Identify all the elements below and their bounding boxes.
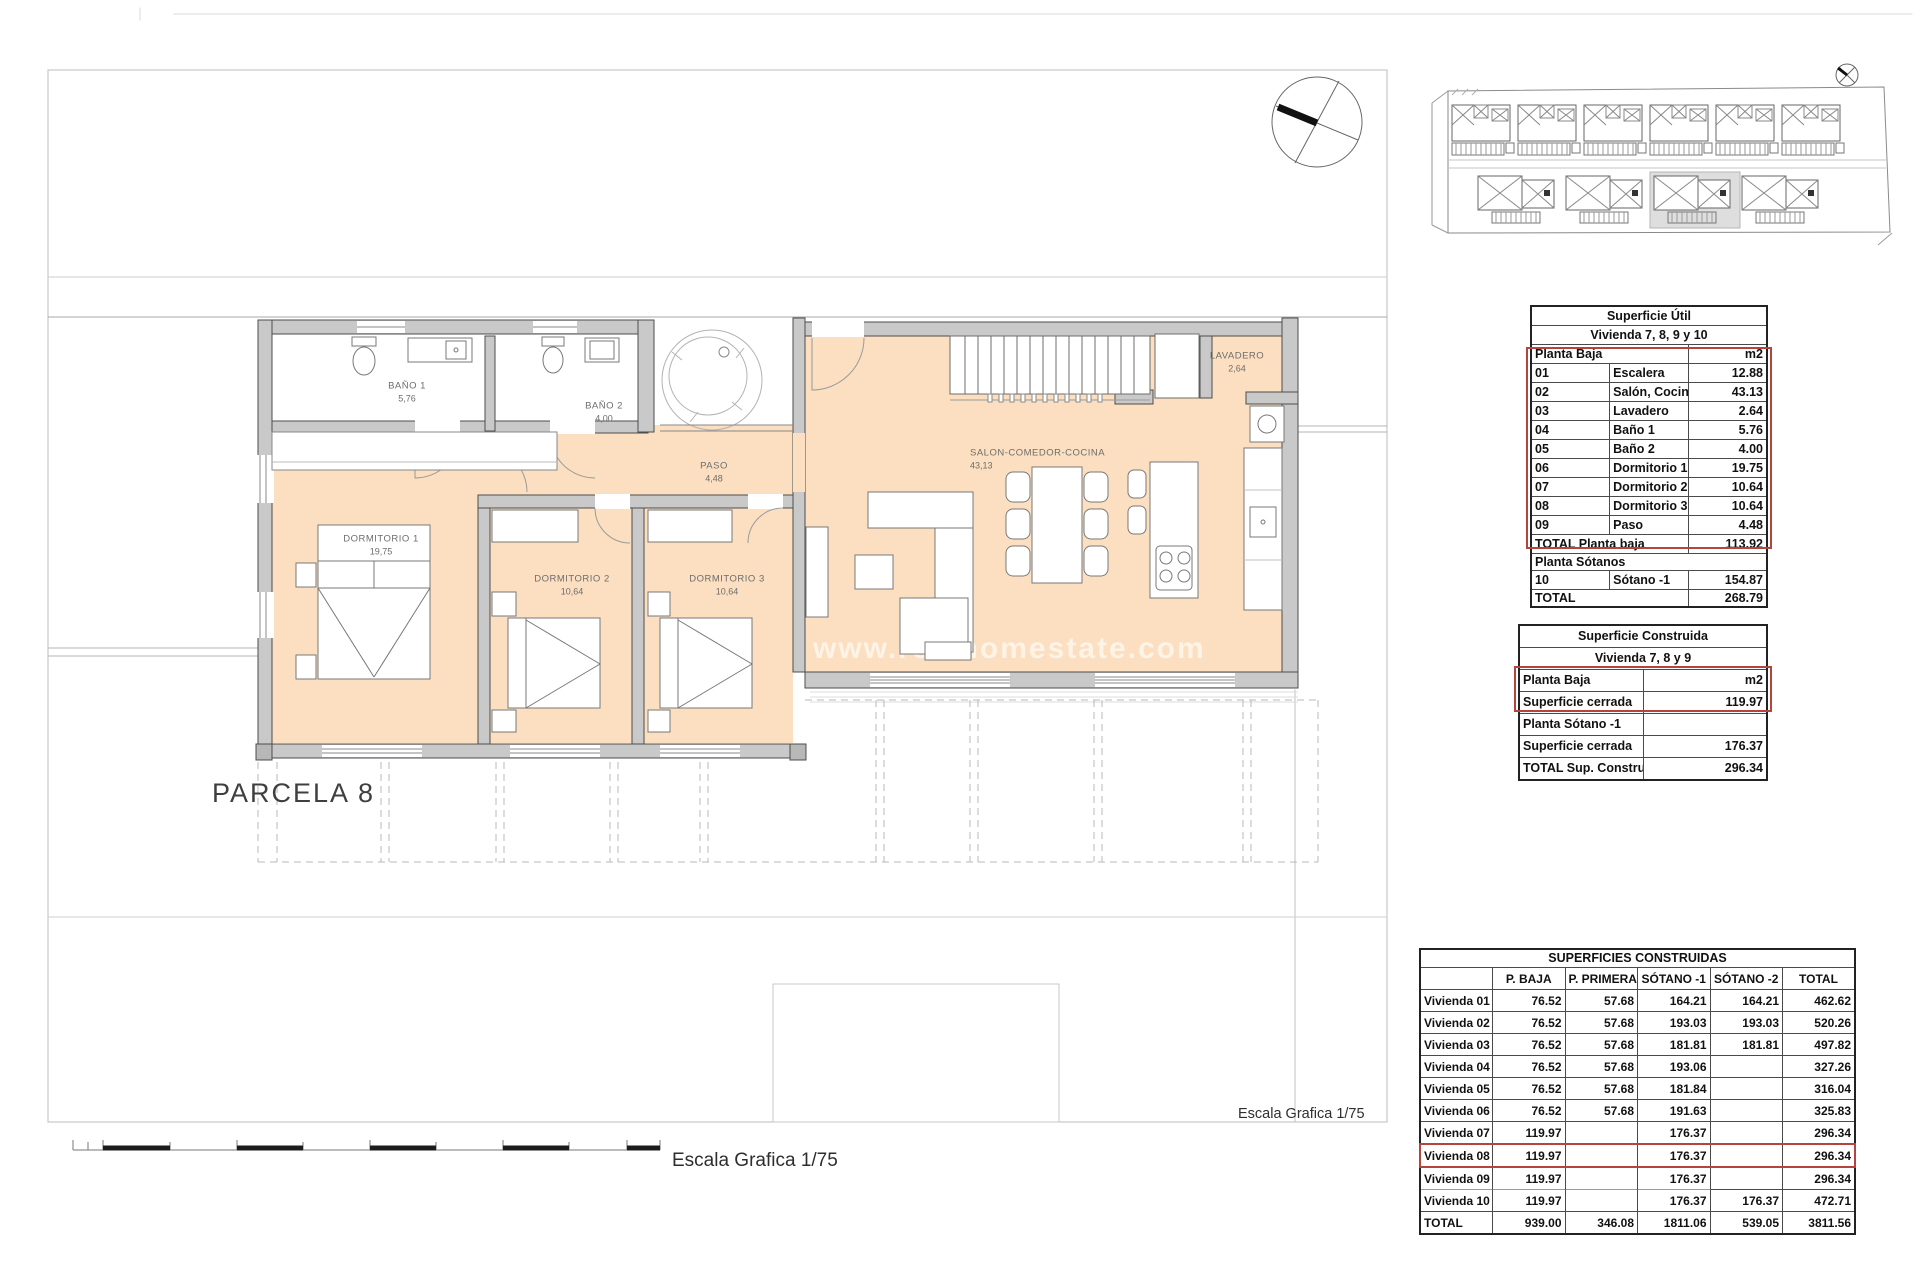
room-area: 5,76 xyxy=(388,394,426,403)
value-cell: 5.76 xyxy=(1688,421,1767,440)
bar-stool xyxy=(1128,506,1146,534)
coffee-table xyxy=(855,555,893,589)
room-area: 4,48 xyxy=(700,474,728,483)
table-row: 04 Baño 1 5.76 xyxy=(1531,421,1767,440)
table-row: Vivienda 01 76.52 57.68 164.21 164.21 46… xyxy=(1420,990,1855,1012)
tree-icon xyxy=(662,330,762,430)
table-row: 01 Escalera 12.88 xyxy=(1531,364,1767,383)
scale-note-plan: Escala Grafica 1/75 xyxy=(1238,1106,1365,1122)
bed-dormitorio-2 xyxy=(508,618,600,708)
value-cell: 193.03 xyxy=(1710,1012,1783,1034)
table-row: Vivienda 04 76.52 57.68 193.06 327.26 xyxy=(1420,1056,1855,1078)
value-cell: 76.52 xyxy=(1493,1056,1566,1078)
row-number: 04 xyxy=(1531,421,1610,440)
tv-unit xyxy=(806,527,828,617)
washing-machine-icon xyxy=(1250,406,1284,442)
value-cell xyxy=(1710,1100,1783,1122)
table-row: 08 Dormitorio 3 10.64 xyxy=(1531,497,1767,516)
room-label-lavadero: LAVADERO 2,64 xyxy=(1210,351,1264,373)
row-number: 07 xyxy=(1531,478,1610,497)
bed-dormitorio-3 xyxy=(660,618,752,708)
value-cell: 316.04 xyxy=(1783,1078,1856,1100)
value-cell: 472.71 xyxy=(1783,1190,1856,1212)
value-cell: m2 xyxy=(1643,670,1767,692)
room-cell: Dormitorio 3 xyxy=(1610,497,1689,516)
value-cell: 4.00 xyxy=(1688,440,1767,459)
row-number: 02 xyxy=(1531,383,1610,402)
table-title: Superficie Construida xyxy=(1519,625,1767,648)
value-cell: 57.68 xyxy=(1565,1056,1638,1078)
room-cell: Lavadero xyxy=(1610,402,1689,421)
room-area: 19,75 xyxy=(343,547,419,556)
table-superficie-util: Superficie Útil Vivienda 7, 8, 9 y 10 Pl… xyxy=(1530,305,1768,608)
room-label-bano-1: BAÑO 1 5,76 xyxy=(388,381,426,403)
value-cell: 164.21 xyxy=(1638,990,1711,1012)
room-name: BAÑO 1 xyxy=(388,381,426,391)
col-header: P. PRIMERA xyxy=(1565,968,1638,990)
table-row: Vivienda 03 76.52 57.68 181.81 181.81 49… xyxy=(1420,1034,1855,1056)
value-cell: 10.64 xyxy=(1688,478,1767,497)
room-name: DORMITORIO 2 xyxy=(534,574,610,584)
value-cell: 296.34 xyxy=(1783,1167,1856,1190)
vivienda-cell: Vivienda 02 xyxy=(1420,1012,1493,1034)
table-subtitle: Vivienda 7, 8, 9 y 10 xyxy=(1531,326,1767,345)
value-cell: 193.03 xyxy=(1638,1012,1711,1034)
value-cell: 57.68 xyxy=(1565,1100,1638,1122)
value-cell: 19.75 xyxy=(1688,459,1767,478)
vivienda-cell: Vivienda 01 xyxy=(1420,990,1493,1012)
value-cell: 57.68 xyxy=(1565,1078,1638,1100)
row-number: 05 xyxy=(1531,440,1610,459)
room-area: 2,64 xyxy=(1210,364,1264,373)
dining-table xyxy=(1032,467,1082,583)
value-cell: 76.52 xyxy=(1493,1012,1566,1034)
room-label-bano-2: BAÑO 2 4,00 xyxy=(585,401,623,423)
room-area: 10,64 xyxy=(689,587,765,596)
scale-bar xyxy=(73,1140,660,1150)
value-cell: 3811.56 xyxy=(1783,1212,1856,1235)
table-row: 02 Salón, Cocina, Comedor 43.13 xyxy=(1531,383,1767,402)
row-number: 01 xyxy=(1531,364,1610,383)
row-number: 09 xyxy=(1531,516,1610,535)
room-cell: Baño 2 xyxy=(1610,440,1689,459)
room-area: 4,00 xyxy=(585,414,623,423)
row-number: 08 xyxy=(1531,497,1610,516)
value-cell: 176.37 xyxy=(1710,1190,1783,1212)
compass-icon xyxy=(1272,77,1362,167)
table-row: 05 Baño 2 4.00 xyxy=(1531,440,1767,459)
value-cell: 1811.06 xyxy=(1638,1212,1711,1235)
value-cell xyxy=(1710,1056,1783,1078)
total-value: 113.92 xyxy=(1688,535,1767,554)
value-cell: 119.97 xyxy=(1493,1167,1566,1190)
value-cell: 296.34 xyxy=(1783,1122,1856,1145)
column-header-row: P. BAJA P. PRIMERA SÓTANO -1 SÓTANO -2 T… xyxy=(1420,968,1855,990)
value-cell: 181.81 xyxy=(1710,1034,1783,1056)
table-row: 09 Paso 4.48 xyxy=(1531,516,1767,535)
value-cell: 296.34 xyxy=(1783,1144,1856,1167)
value-cell xyxy=(1710,1122,1783,1145)
dining-set xyxy=(1006,467,1108,583)
value-cell: 193.06 xyxy=(1638,1056,1711,1078)
value-cell: 4.48 xyxy=(1688,516,1767,535)
value-cell: 539.05 xyxy=(1710,1212,1783,1235)
value-cell: 119.97 xyxy=(1493,1122,1566,1145)
room-name: PASO xyxy=(700,461,728,471)
room-label-salon: SALON-COMEDOR-COCINA 43,13 xyxy=(970,448,1105,470)
room-area: 43,13 xyxy=(970,461,1105,470)
table-row: Vivienda 07 119.97 176.37 296.34 xyxy=(1420,1122,1855,1145)
row-number: 06 xyxy=(1531,459,1610,478)
table-row: Superficie cerrada 176.37 xyxy=(1519,736,1767,758)
value-cell: 119.97 xyxy=(1493,1144,1566,1167)
table-superficie-construida: Superficie Construida Vivienda 7, 8 y 9 … xyxy=(1518,624,1768,781)
parcel-title: PARCELA 8 xyxy=(212,778,375,809)
value-cell: 296.34 xyxy=(1643,758,1767,781)
table-row: Planta Baja m2 xyxy=(1519,670,1767,692)
value-cell: 939.00 xyxy=(1493,1212,1566,1235)
value-cell: 520.26 xyxy=(1783,1012,1856,1034)
table-row: Vivienda 10 119.97 176.37 176.37 472.71 xyxy=(1420,1190,1855,1212)
scale-note-bottom: Escala Grafica 1/75 xyxy=(672,1150,838,1172)
value-cell: 176.37 xyxy=(1638,1122,1711,1145)
value-cell: 76.52 xyxy=(1493,1100,1566,1122)
vivienda-cell: Vivienda 10 xyxy=(1420,1190,1493,1212)
table-row: TOTAL Sup. Construida 296.34 xyxy=(1519,758,1767,781)
table-row: 06 Dormitorio 1 19.75 xyxy=(1531,459,1767,478)
value-cell: 176.37 xyxy=(1638,1190,1711,1212)
table-row: Vivienda 05 76.52 57.68 181.84 316.04 xyxy=(1420,1078,1855,1100)
stairs xyxy=(950,334,1199,402)
vivienda-cell: Vivienda 05 xyxy=(1420,1078,1493,1100)
room-area: 10,64 xyxy=(534,587,610,596)
vivienda-cell: Vivienda 06 xyxy=(1420,1100,1493,1122)
vivienda-cell: TOTAL xyxy=(1420,1212,1493,1235)
value-cell: 57.68 xyxy=(1565,990,1638,1012)
col-header: P. BAJA xyxy=(1493,968,1566,990)
room-label-dormitorio-2: DORMITORIO 2 10,64 xyxy=(534,574,610,596)
value-cell: 181.84 xyxy=(1638,1078,1711,1100)
value-cell: 119.97 xyxy=(1493,1190,1566,1212)
table-title: Superficie Útil xyxy=(1531,306,1767,326)
row-number: 03 xyxy=(1531,402,1610,421)
value-cell: 119.97 xyxy=(1643,692,1767,714)
value-cell: 327.26 xyxy=(1783,1056,1856,1078)
room-cell: Salón, Cocina, Comedor xyxy=(1610,383,1689,402)
watermark-text: www.realhomestate.com xyxy=(812,632,1206,665)
room-cell: Dormitorio 1 xyxy=(1610,459,1689,478)
sofa xyxy=(868,492,973,528)
col-header: TOTAL xyxy=(1783,968,1856,990)
label-cell: Superficie cerrada xyxy=(1519,736,1643,758)
total-label: TOTAL Planta baja xyxy=(1531,535,1688,554)
hall-wardrobe xyxy=(272,432,557,470)
value-cell: 76.52 xyxy=(1493,990,1566,1012)
value-cell: 176.37 xyxy=(1643,736,1767,758)
table-row: Vivienda 02 76.52 57.68 193.03 193.03 52… xyxy=(1420,1012,1855,1034)
total-value: 268.79 xyxy=(1688,590,1767,608)
room-cell: Baño 1 xyxy=(1610,421,1689,440)
table-superficies-construidas: SUPERFICIES CONSTRUIDAS P. BAJA P. PRIME… xyxy=(1419,948,1856,1235)
value-cell xyxy=(1565,1122,1638,1145)
value-cell: 191.63 xyxy=(1638,1100,1711,1122)
value-cell: 176.37 xyxy=(1638,1144,1711,1167)
table-title: SUPERFICIES CONSTRUIDAS xyxy=(1420,949,1855,968)
value-cell xyxy=(1565,1144,1638,1167)
table-row: Superficie cerrada 119.97 xyxy=(1519,692,1767,714)
room-cell: Dormitorio 2 xyxy=(1610,478,1689,497)
value-cell: 76.52 xyxy=(1493,1034,1566,1056)
value-cell: 2.64 xyxy=(1688,402,1767,421)
section-header: Planta Sótanos xyxy=(1531,554,1767,571)
room-label-paso: PASO 4,48 xyxy=(700,461,728,483)
col-header: SÓTANO -2 xyxy=(1710,968,1783,990)
room-cell: Sótano -1 xyxy=(1610,571,1689,590)
room-label-dormitorio-3: DORMITORIO 3 10,64 xyxy=(689,574,765,596)
value-cell xyxy=(1710,1144,1783,1167)
room-name: DORMITORIO 1 xyxy=(343,534,419,544)
table-row: Vivienda 08 119.97 176.37 296.34 xyxy=(1420,1144,1855,1167)
label-cell: TOTAL Sup. Construida xyxy=(1519,758,1643,781)
table-row: 03 Lavadero 2.64 xyxy=(1531,402,1767,421)
col-header xyxy=(1420,968,1493,990)
label-cell: Superficie cerrada xyxy=(1519,692,1643,714)
value-cell xyxy=(1710,1167,1783,1190)
vivienda-cell: Vivienda 09 xyxy=(1420,1167,1493,1190)
value-cell: 57.68 xyxy=(1565,1012,1638,1034)
vivienda-cell: Vivienda 03 xyxy=(1420,1034,1493,1056)
value-cell xyxy=(1710,1078,1783,1100)
kitchen-sink xyxy=(1250,507,1276,537)
value-cell: 176.37 xyxy=(1638,1167,1711,1190)
value-cell xyxy=(1643,714,1767,736)
room-name: DORMITORIO 3 xyxy=(689,574,765,584)
total-label: TOTAL xyxy=(1531,590,1688,608)
row-number: 10 xyxy=(1531,571,1610,590)
col-header: SÓTANO -1 xyxy=(1638,968,1711,990)
value-cell: 154.87 xyxy=(1688,571,1767,590)
value-cell: 10.64 xyxy=(1688,497,1767,516)
value-cell: 181.81 xyxy=(1638,1034,1711,1056)
room-name: BAÑO 2 xyxy=(585,401,623,411)
site-plan-thumbnail xyxy=(1432,64,1892,245)
room-label-dormitorio-1: DORMITORIO 1 19,75 xyxy=(343,534,419,556)
value-cell: 462.62 xyxy=(1783,990,1856,1012)
value-cell: 12.88 xyxy=(1688,364,1767,383)
value-cell xyxy=(1565,1190,1638,1212)
bar-stool xyxy=(1128,470,1146,498)
section-header: Planta Baja xyxy=(1531,345,1688,364)
value-cell: 325.83 xyxy=(1783,1100,1856,1122)
mini-compass-icon xyxy=(1836,64,1858,86)
table-row: 07 Dormitorio 2 10.64 xyxy=(1531,478,1767,497)
table-row: TOTAL 939.00 346.08 1811.06 539.05 3811.… xyxy=(1420,1212,1855,1235)
value-cell: 76.52 xyxy=(1493,1078,1566,1100)
table-subtitle: Vivienda 7, 8 y 9 xyxy=(1519,648,1767,670)
room-name: SALON-COMEDOR-COCINA xyxy=(970,448,1105,458)
value-cell: 497.82 xyxy=(1783,1034,1856,1056)
room-name: LAVADERO xyxy=(1210,351,1264,361)
vivienda-cell: Vivienda 07 xyxy=(1420,1122,1493,1145)
room-cell: Paso xyxy=(1610,516,1689,535)
table-row: Vivienda 09 119.97 176.37 296.34 xyxy=(1420,1167,1855,1190)
label-cell: Planta Baja xyxy=(1519,670,1643,692)
vivienda-cell: Vivienda 08 xyxy=(1420,1144,1493,1167)
value-cell: 164.21 xyxy=(1710,990,1783,1012)
table-row: Vivienda 06 76.52 57.68 191.63 325.83 xyxy=(1420,1100,1855,1122)
kitchen-island xyxy=(1150,462,1198,598)
table-row: Planta Sótano -1 xyxy=(1519,714,1767,736)
value-cell: 57.68 xyxy=(1565,1034,1638,1056)
room-cell: Escalera xyxy=(1610,364,1689,383)
value-cell: 43.13 xyxy=(1688,383,1767,402)
label-cell: Planta Sótano -1 xyxy=(1519,714,1643,736)
unit-header: m2 xyxy=(1688,345,1767,364)
value-cell xyxy=(1565,1167,1638,1190)
vivienda-cell: Vivienda 04 xyxy=(1420,1056,1493,1078)
value-cell: 346.08 xyxy=(1565,1212,1638,1235)
